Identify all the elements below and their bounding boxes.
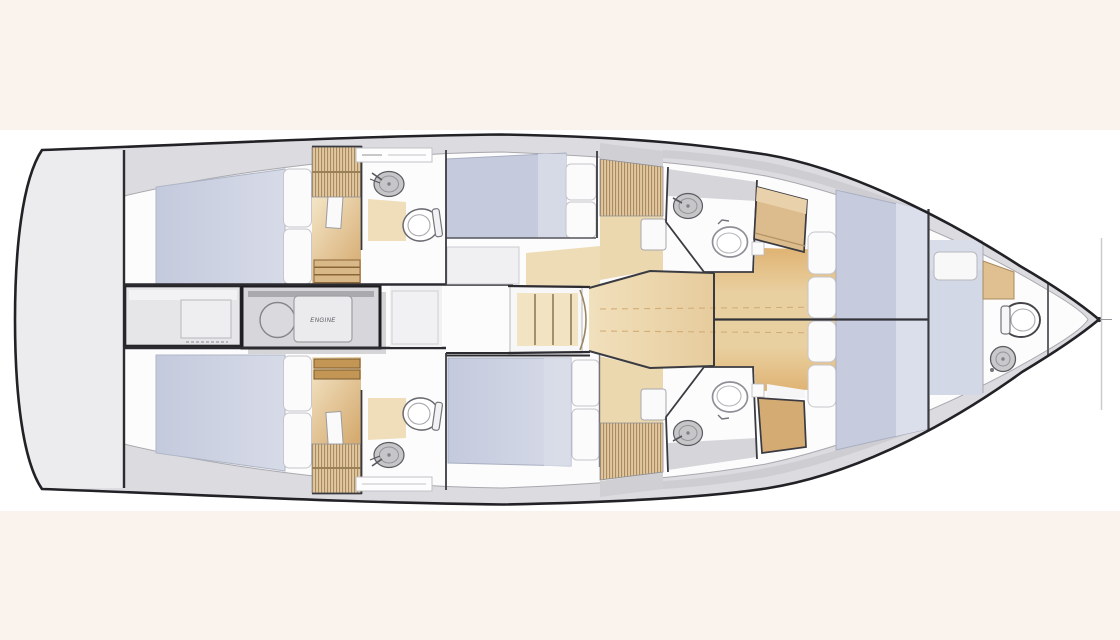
svg-text:ENGINE: ENGINE <box>310 318 336 324</box>
